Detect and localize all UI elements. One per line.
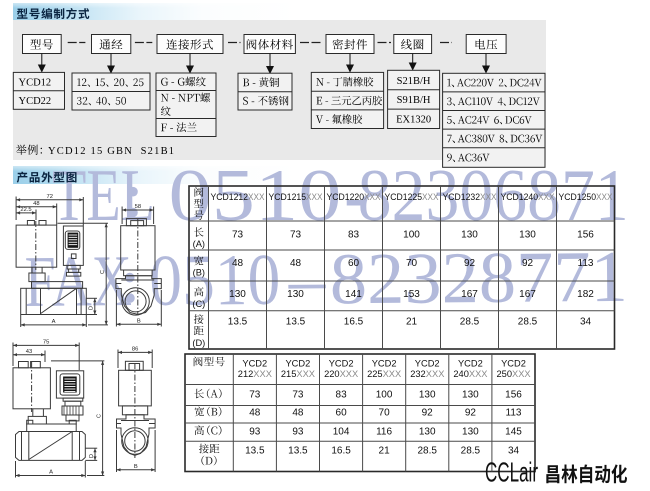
svg-text:70: 70 <box>379 408 391 419</box>
svg-text:130: 130 <box>461 229 478 240</box>
svg-text:28.5: 28.5 <box>461 445 481 456</box>
svg-text:220: 220 <box>324 369 340 379</box>
svg-text:92: 92 <box>522 258 534 269</box>
svg-text:YCD2: YCD2 <box>329 359 354 369</box>
svg-text:130: 130 <box>419 426 436 437</box>
svg-text:XXX: XXX <box>422 192 439 202</box>
svg-text:YCD1232: YCD1232 <box>443 192 481 202</box>
svg-text:CCLair: CCLair <box>485 457 538 488</box>
svg-text:225: 225 <box>367 369 383 379</box>
svg-text:167: 167 <box>461 289 478 300</box>
svg-text:16.5: 16.5 <box>331 445 351 456</box>
svg-text:130: 130 <box>419 390 436 401</box>
svg-text:113: 113 <box>506 408 522 419</box>
svg-text:XXX: XXX <box>340 369 359 379</box>
svg-text:141: 141 <box>345 289 362 300</box>
svg-text:100: 100 <box>376 390 393 401</box>
svg-text:130: 130 <box>462 390 479 401</box>
svg-text:13.5: 13.5 <box>288 445 308 456</box>
svg-text:XXX: XXX <box>426 369 445 379</box>
svg-text:XXX: XXX <box>538 192 555 202</box>
svg-text:(A): (A) <box>193 239 205 249</box>
svg-text:XXX: XXX <box>248 192 265 202</box>
svg-text:73: 73 <box>249 390 261 401</box>
svg-text:(B): (B) <box>193 267 205 277</box>
svg-text:145: 145 <box>505 426 522 437</box>
svg-text:XXX: XXX <box>296 369 315 379</box>
svg-text:130: 130 <box>287 289 304 300</box>
svg-text:YCD2: YCD2 <box>285 359 310 369</box>
svg-text:XXX: XXX <box>364 192 381 202</box>
svg-text:28.5: 28.5 <box>417 445 437 456</box>
svg-text:73: 73 <box>232 229 244 240</box>
svg-text:YCD2: YCD2 <box>415 359 440 369</box>
svg-text:13.5: 13.5 <box>245 445 265 456</box>
svg-text:34: 34 <box>580 317 592 328</box>
svg-text:YCD1212: YCD1212 <box>211 192 249 202</box>
svg-text:48: 48 <box>232 258 244 269</box>
svg-text:92: 92 <box>422 408 434 419</box>
svg-text:YCD2: YCD2 <box>372 359 397 369</box>
svg-text:113: 113 <box>578 258 594 269</box>
svg-text:XXX: XXX <box>469 369 488 379</box>
svg-text:73: 73 <box>292 390 304 401</box>
svg-text:YCD1215: YCD1215 <box>269 192 307 202</box>
svg-text:YCD1220: YCD1220 <box>327 192 365 202</box>
svg-text:60: 60 <box>336 408 348 419</box>
svg-text:XXX: XXX <box>596 192 613 202</box>
svg-text:YCD1250: YCD1250 <box>559 192 597 202</box>
svg-text:16.5: 16.5 <box>344 317 364 328</box>
svg-text:28.5: 28.5 <box>518 317 538 328</box>
svg-text:21: 21 <box>379 445 391 456</box>
svg-text:92: 92 <box>465 408 477 419</box>
svg-text:156: 156 <box>505 390 522 401</box>
svg-text:104: 104 <box>333 426 350 437</box>
svg-text:XXX: XXX <box>480 192 497 202</box>
svg-text:34: 34 <box>508 445 520 456</box>
svg-text:240: 240 <box>453 369 469 379</box>
svg-text:(C): (C) <box>192 299 205 309</box>
svg-text:XXX: XXX <box>383 369 402 379</box>
svg-text:182: 182 <box>577 289 594 300</box>
svg-text:YCD2: YCD2 <box>458 359 483 369</box>
svg-text:100: 100 <box>403 229 420 240</box>
svg-text:83: 83 <box>336 390 348 401</box>
svg-text:215: 215 <box>281 369 297 379</box>
svg-text:XXX: XXX <box>306 192 323 202</box>
svg-text:YCD2: YCD2 <box>501 359 526 369</box>
svg-text:167: 167 <box>519 289 536 300</box>
svg-text:48: 48 <box>292 408 304 419</box>
svg-text:232: 232 <box>410 369 426 379</box>
svg-text:13.5: 13.5 <box>228 317 248 328</box>
svg-text:XXX: XXX <box>512 369 531 379</box>
svg-text:116: 116 <box>376 426 392 437</box>
svg-text:60: 60 <box>348 258 360 269</box>
svg-text:XXX: XXX <box>253 369 272 379</box>
svg-text:13.5: 13.5 <box>286 317 306 328</box>
svg-text:(D): (D) <box>192 338 205 348</box>
svg-text:130: 130 <box>229 289 246 300</box>
svg-text:212: 212 <box>238 369 254 379</box>
svg-text:130: 130 <box>462 426 479 437</box>
svg-text:28.5: 28.5 <box>460 317 480 328</box>
svg-text:48: 48 <box>249 408 261 419</box>
svg-text:153: 153 <box>403 289 420 300</box>
svg-text:YCD2: YCD2 <box>242 359 267 369</box>
svg-text:93: 93 <box>292 426 304 437</box>
svg-text:73: 73 <box>290 229 302 240</box>
svg-text:70: 70 <box>406 258 418 269</box>
svg-text:92: 92 <box>464 258 476 269</box>
svg-text:250: 250 <box>497 369 513 379</box>
svg-text:83: 83 <box>348 229 360 240</box>
svg-text:21: 21 <box>406 317 418 328</box>
svg-text:48: 48 <box>290 258 302 269</box>
svg-text:130: 130 <box>519 229 536 240</box>
svg-text:156: 156 <box>577 229 594 240</box>
svg-text:YCD1225: YCD1225 <box>385 192 423 202</box>
svg-text:YCD1240: YCD1240 <box>501 192 539 202</box>
svg-text:93: 93 <box>249 426 261 437</box>
